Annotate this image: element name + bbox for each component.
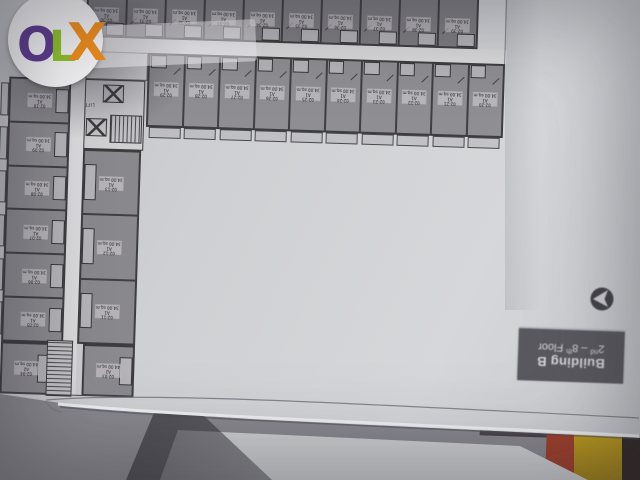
unit-label: 02-07A134.00 sq.m: [23, 224, 48, 239]
left-inner-column: 02-13A134.00 sq.m02-12A134.00 sq.m02-11A…: [77, 149, 141, 346]
unit-02-11: 02-11A134.00 sq.m: [78, 279, 136, 345]
bathroom: [470, 65, 486, 78]
bathroom: [54, 132, 68, 156]
balcony: [0, 126, 8, 159]
unit-label: 02-12A134.00 sq.m: [97, 240, 122, 255]
photo-frame: 02-30A134.00 sq.m02-31A134.00 sq.m02-32A…: [0, 0, 640, 480]
bathroom: [82, 228, 95, 264]
unit-label: 02-23A134.00 sq.m: [366, 88, 391, 103]
balcony: [0, 214, 5, 247]
building-floor-label: Building B 2nd – 8th Floor: [517, 328, 625, 384]
unit-label: 02-35A134.00 sq.m: [289, 13, 314, 28]
unit-02-36: 02-36A134.00 sq.m: [321, 0, 362, 45]
balcony: [0, 170, 6, 203]
bathroom: [418, 32, 436, 46]
bathroom: [379, 31, 397, 45]
unit-label: 02-03A244.00 sq.m: [96, 363, 121, 378]
unit-label: 02-09A134.00 sq.m: [26, 137, 51, 152]
unit-label: 02-04A244.00 sq.m: [14, 361, 39, 376]
balcony: [0, 302, 2, 335]
unit-02-07: 02-07A134.00 sq.m: [5, 209, 66, 255]
balcony: [255, 130, 287, 142]
unit-02-21: 02-21A134.00 sq.m: [431, 63, 469, 136]
unit-label: 02-39A134.00 sq.m: [445, 18, 470, 33]
unit-02-24: 02-24A134.00 sq.m: [324, 59, 362, 132]
unit-02-20: 02-20A134.00 sq.m: [466, 64, 504, 137]
core-stair-icon: [109, 115, 142, 144]
unit-label: 02-08A134.00 sq.m: [24, 181, 49, 196]
bathroom: [457, 34, 475, 48]
unit-02-22: 02-22A134.00 sq.m: [395, 62, 433, 135]
bathroom: [84, 164, 97, 200]
olx-logo: O L X: [0, 0, 270, 106]
bathroom: [399, 63, 415, 76]
unit-02-13: 02-13A134.00 sq.m: [82, 150, 140, 216]
balcony: [148, 127, 180, 139]
bathroom: [301, 29, 319, 43]
balcony: [184, 128, 216, 140]
unit-label: 02-37A134.00 sq.m: [367, 15, 392, 30]
unit-02-25: 02-25A134.00 sq.m: [289, 58, 327, 131]
balcony: [219, 129, 251, 141]
unit-02-23: 02-23A134.00 sq.m: [360, 61, 398, 134]
unit-02-09: 02-09A134.00 sq.m: [8, 121, 69, 167]
bathroom: [340, 30, 358, 44]
unit-label: 02-38A134.00 sq.m: [406, 16, 431, 31]
unit-label: 02-22A134.00 sq.m: [402, 89, 427, 104]
bathroom: [293, 59, 309, 72]
balcony: [361, 134, 393, 146]
floor-range: 2nd – 8th Floor: [538, 341, 605, 356]
north-compass-icon: [588, 285, 616, 313]
logo-letter-x: X: [67, 13, 107, 73]
bathroom: [364, 62, 380, 75]
bathroom: [119, 357, 133, 385]
bathroom: [48, 308, 62, 332]
unit-label: 02-11A134.00 sq.m: [95, 304, 120, 319]
unit-02-03: 02-03A244.00 sq.m: [81, 344, 135, 398]
lift-shaft-icon: [86, 118, 108, 137]
staircase-icon: [45, 340, 73, 397]
balcony: [0, 258, 4, 291]
unit-label: 02-13A134.00 sq.m: [99, 175, 124, 190]
bathroom: [435, 64, 451, 77]
balcony: [468, 137, 500, 149]
building-name: Building B: [537, 354, 605, 371]
unit-02-39: 02-39A134.00 sq.m: [438, 0, 479, 48]
unit-label: 02-21A134.00 sq.m: [437, 91, 462, 106]
unit-label: 02-36A134.00 sq.m: [328, 14, 353, 29]
unit-label: 02-06A134.00 sq.m: [22, 268, 47, 283]
bathroom: [328, 61, 344, 74]
unit-label: 02-25A134.00 sq.m: [295, 86, 320, 101]
bathroom: [51, 220, 65, 244]
unit-02-12: 02-12A134.00 sq.m: [80, 214, 138, 280]
unit-02-37: 02-37A134.00 sq.m: [360, 0, 401, 46]
bathroom: [80, 293, 93, 329]
unit-02-38: 02-38A134.00 sq.m: [399, 0, 440, 47]
balcony: [397, 135, 429, 147]
bathroom: [50, 264, 64, 288]
unit-02-35: 02-35A134.00 sq.m: [282, 0, 323, 43]
unit-02-06: 02-06A134.00 sq.m: [4, 253, 65, 299]
unit-label: 02-24A134.00 sq.m: [331, 87, 356, 102]
balcony: [432, 136, 464, 148]
balcony: [326, 133, 358, 145]
balcony: [290, 131, 322, 143]
unit-02-05: 02-05A134.00 sq.m: [2, 297, 63, 343]
bathroom: [53, 176, 67, 200]
unit-02-08: 02-08A134.00 sq.m: [6, 165, 67, 211]
left-outer-column: 02-10A134.00 sq.m02-09A134.00 sq.m02-08A…: [1, 77, 71, 344]
unit-label: 02-20A134.00 sq.m: [473, 92, 498, 107]
unit-label: 02-05A134.00 sq.m: [20, 312, 45, 327]
